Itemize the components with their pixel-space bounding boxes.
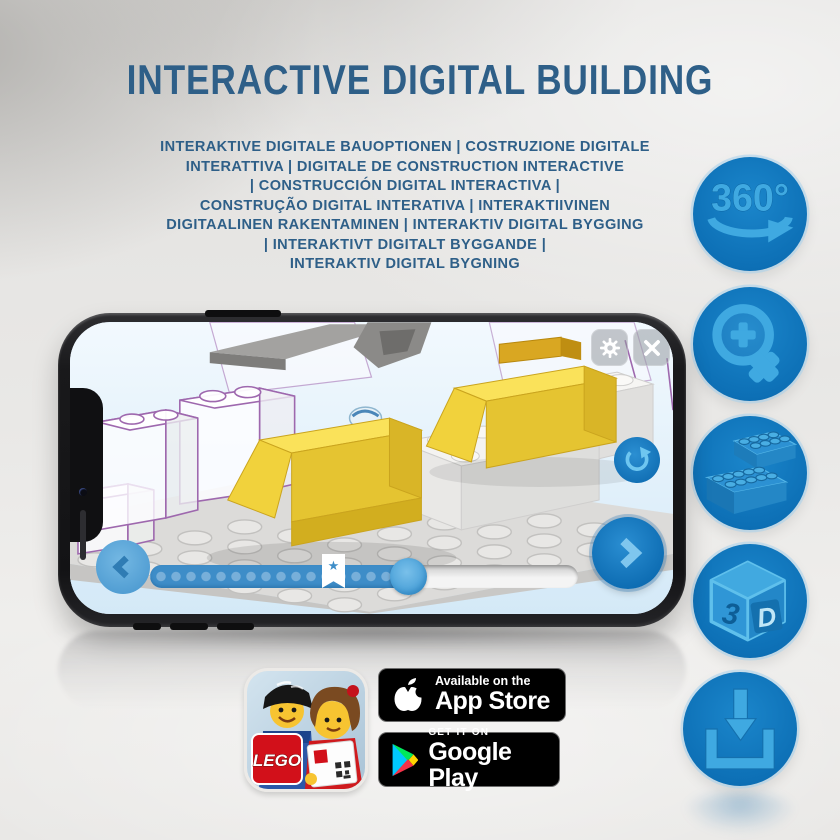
download-icon bbox=[683, 672, 797, 786]
phone-volume-down-button bbox=[217, 623, 254, 630]
google-play-tagline: GET IT ON bbox=[428, 728, 547, 739]
360-rotation-icon: 360° bbox=[693, 157, 807, 271]
lego-app-icon[interactable]: LEGO bbox=[244, 668, 368, 792]
app-store-badge[interactable]: Available on the App Store bbox=[378, 668, 566, 722]
subtitle-line: | INTERAKTIVT DIGITALT BYGGANDE | bbox=[95, 235, 716, 255]
feature-download-button[interactable] bbox=[683, 672, 797, 786]
feature-circle-reflection bbox=[683, 792, 797, 834]
zoom-in-icon bbox=[693, 287, 807, 401]
lego-bricks-icon bbox=[693, 416, 807, 530]
close-icon bbox=[641, 337, 663, 359]
phone-mockup: ★ bbox=[58, 313, 686, 627]
subtitle-line: DIGITAALINEN RAKENTAMINEN | INTERAKTIV D… bbox=[95, 215, 716, 235]
subtitle-line: CONSTRUÇÃO DIGITAL INTERATIVA | INTERAKT… bbox=[95, 196, 716, 216]
build-progress-slider[interactable]: ★ bbox=[150, 565, 578, 588]
phone-mute-switch bbox=[133, 623, 161, 630]
subtitle-line: INTERAKTIV DIGITAL BYGNING bbox=[95, 254, 716, 274]
next-step-button[interactable] bbox=[592, 517, 664, 589]
phone-notch bbox=[70, 388, 103, 542]
page-title: INTERACTIVE DIGITAL BUILDING bbox=[67, 56, 773, 104]
chevron-right-icon bbox=[608, 533, 648, 573]
feature-zoom-button[interactable] bbox=[693, 287, 807, 401]
subtitle-line: INTERATTIVA | DIGITALE DE CONSTRUCTION I… bbox=[95, 157, 716, 177]
poster: INTERACTIVE DIGITAL BUILDING INTERAKTIVE… bbox=[0, 0, 840, 840]
chevron-left-icon bbox=[108, 552, 138, 582]
feature-3d-button[interactable]: 3 D bbox=[693, 544, 807, 658]
front-camera bbox=[79, 488, 87, 496]
rotate-icon bbox=[620, 443, 654, 477]
lego-app-artwork: LEGO bbox=[247, 671, 365, 789]
close-button[interactable] bbox=[633, 329, 670, 366]
rotate-view-button[interactable] bbox=[614, 437, 660, 483]
gear-icon bbox=[598, 336, 622, 360]
3d-cube-icon: 3 D bbox=[693, 544, 807, 658]
phone-reflection bbox=[58, 631, 686, 709]
google-play-name: Google Play bbox=[428, 739, 547, 792]
apple-logo-icon bbox=[391, 675, 425, 715]
360-label: 360° bbox=[711, 177, 789, 219]
google-play-icon bbox=[391, 742, 418, 778]
settings-button[interactable] bbox=[591, 329, 628, 366]
slider-handle[interactable] bbox=[390, 558, 427, 595]
multilingual-subtitle: INTERAKTIVE DIGITALE BAUOPTIONEN | COSTR… bbox=[95, 137, 716, 274]
subtitle-line: | CONSTRUCCIÓN DIGITAL INTERACTIVA | bbox=[95, 176, 716, 196]
phone-side-button bbox=[205, 310, 281, 317]
previous-step-button[interactable] bbox=[96, 540, 150, 594]
feature-bricks-button[interactable] bbox=[693, 416, 807, 530]
subtitle-line: INTERAKTIVE DIGITALE BAUOPTIONEN | COSTR… bbox=[95, 137, 716, 157]
app-store-name: App Store bbox=[435, 688, 550, 714]
lego-logo-text: LEGO bbox=[253, 751, 301, 770]
feature-360-button[interactable]: 360° bbox=[693, 157, 807, 271]
earpiece-speaker bbox=[80, 510, 86, 560]
google-play-badge[interactable]: GET IT ON Google Play bbox=[378, 732, 560, 787]
phone-volume-up-button bbox=[170, 623, 208, 630]
progress-fill bbox=[150, 565, 408, 588]
app-screen: ★ bbox=[70, 322, 673, 614]
